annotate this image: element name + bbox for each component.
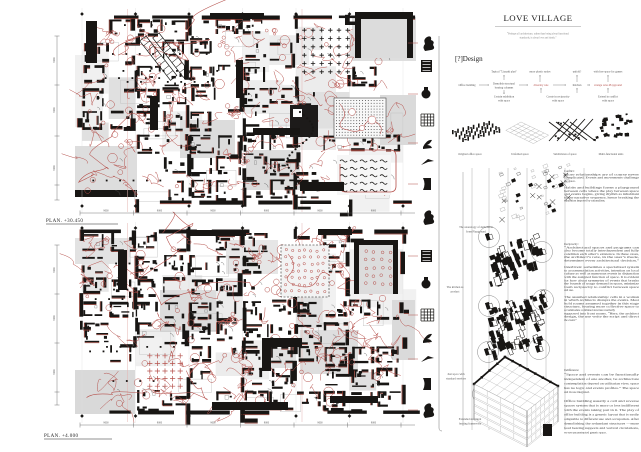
svg-text:from Playground: from Playground: [466, 230, 486, 234]
svg-text:9000: 9000: [210, 210, 216, 213]
svg-text:and its use integrated.: and its use integrated.: [564, 390, 590, 394]
svg-text:9000: 9000: [317, 422, 323, 425]
svg-text:with space: with space: [552, 100, 565, 103]
svg-text:Original office space: Original office space: [458, 153, 482, 156]
svg-text:has no logic and events profil: has no logic and events profiles.” The s…: [564, 386, 640, 390]
svg-text:9000: 9000: [317, 210, 323, 213]
svg-text:9000: 9000: [264, 422, 270, 425]
svg-text:Create in reciprocity: Create in reciprocity: [547, 96, 571, 99]
svg-text:the event.”: the event.”: [564, 318, 577, 322]
svg-text:Demolish structural: Demolish structural: [493, 83, 515, 86]
svg-text:unfold?: unfold?: [573, 71, 582, 74]
svg-text:9000: 9000: [210, 422, 216, 425]
svg-text:with free space for games: with free space for games: [594, 71, 623, 74]
svg-text:demolishing the redundant stru: demolishing the redundant structures —mo…: [564, 421, 640, 425]
svg-text:adaptable to different use and: adaptable to different use and occupatio…: [564, 417, 639, 421]
svg-text:Unfolded space: Unfolded space: [511, 153, 529, 156]
svg-text:9000: 9000: [53, 165, 56, 171]
svg-text:PLAN. +4.000: PLAN. +4.000: [44, 434, 79, 439]
svg-text:9000: 9000: [371, 210, 377, 213]
svg-text:9000: 9000: [157, 210, 163, 213]
svg-text:9000: 9000: [53, 369, 56, 375]
svg-text:9000: 9000: [53, 315, 56, 321]
svg-text:standard services: standard services: [446, 377, 467, 381]
svg-text:bearing columns: bearing columns: [495, 87, 514, 90]
svg-text:diversity role: diversity role: [534, 84, 550, 87]
svg-text:[?]Design: [?]Design: [455, 55, 483, 63]
svg-text:from reciprocity to conflict b: from reciprocity to conflict between spa…: [564, 285, 640, 289]
svg-text:The kitchen as: The kitchen as: [447, 285, 465, 289]
svg-text:spaces system that is more or: spaces system that is more or less indif…: [564, 404, 639, 408]
svg-text:office building is a generic l: office building is a generic layout that…: [564, 413, 640, 417]
svg-text:strange roles Playground: strange roles Playground: [594, 84, 622, 87]
svg-text:Certain exhibition: Certain exhibition: [494, 96, 515, 99]
svg-text:determines every architectural: determines every architectural decision.…: [564, 259, 640, 263]
svg-text:Typical “Lianzhi plan”: Typical “Lianzhi plan”: [491, 71, 517, 74]
svg-text:“Perhaps all architecture, rat: “Perhaps all architecture, rather than b…: [507, 33, 569, 36]
svg-text:9000: 9000: [53, 57, 56, 63]
svg-text:PLAN. +30.450: PLAN. +30.450: [46, 219, 83, 224]
svg-text:Just up-to with: Just up-to with: [447, 372, 465, 376]
svg-text:more plastic nodes: more plastic nodes: [530, 71, 551, 74]
svg-text:Office building usually a cell: Office building usually a cell and rever…: [564, 399, 640, 403]
svg-text:9000: 9000: [53, 107, 56, 113]
svg-text:Extended structural: Extended structural: [459, 417, 482, 421]
svg-text:9000: 9000: [264, 210, 270, 213]
svg-text:9000: 9000: [371, 422, 377, 425]
svg-text:Office building: Office building: [458, 84, 476, 87]
svg-text:separation imposed by rational: separation imposed by rationalism.: [564, 199, 605, 203]
svg-text:“Space and events can be funct: “Space and events can be functionally: [564, 371, 640, 376]
svg-text:with space: with space: [498, 100, 511, 103]
svg-text:9000: 9000: [157, 422, 163, 425]
svg-text:9000: 9000: [53, 267, 56, 273]
svg-text:and use.: and use.: [564, 288, 574, 292]
svg-text:9000: 9000: [103, 422, 109, 425]
svg-text:Kitchen: Kitchen: [573, 84, 582, 87]
svg-text:Subdivision of space: Subdivision of space: [553, 153, 577, 156]
svg-text:we see unconstructed generic s: we see unconstructed generic space.: [564, 430, 607, 434]
svg-text:product: product: [451, 290, 460, 294]
svg-text:LOVE VILLAGE: LOVE VILLAGE: [503, 13, 572, 23]
svg-text:The axonology of demolition: The axonology of demolition: [459, 225, 493, 229]
svg-text:Extend in conflict: Extend in conflict: [598, 96, 618, 99]
svg-text:9000: 9000: [103, 210, 109, 213]
svg-text:with space: with space: [602, 100, 615, 103]
svg-text:with the events taking part in: with the events taking part in it. The p…: [564, 408, 639, 412]
svg-text:Indifference:: Indifference:: [564, 368, 579, 372]
svg-text:Multi-functional units: Multi-functional units: [599, 153, 624, 156]
svg-text:standards, is about love and d: standards, is about love and death.”: [520, 37, 558, 40]
svg-text:bearing framework: bearing framework: [459, 422, 482, 426]
